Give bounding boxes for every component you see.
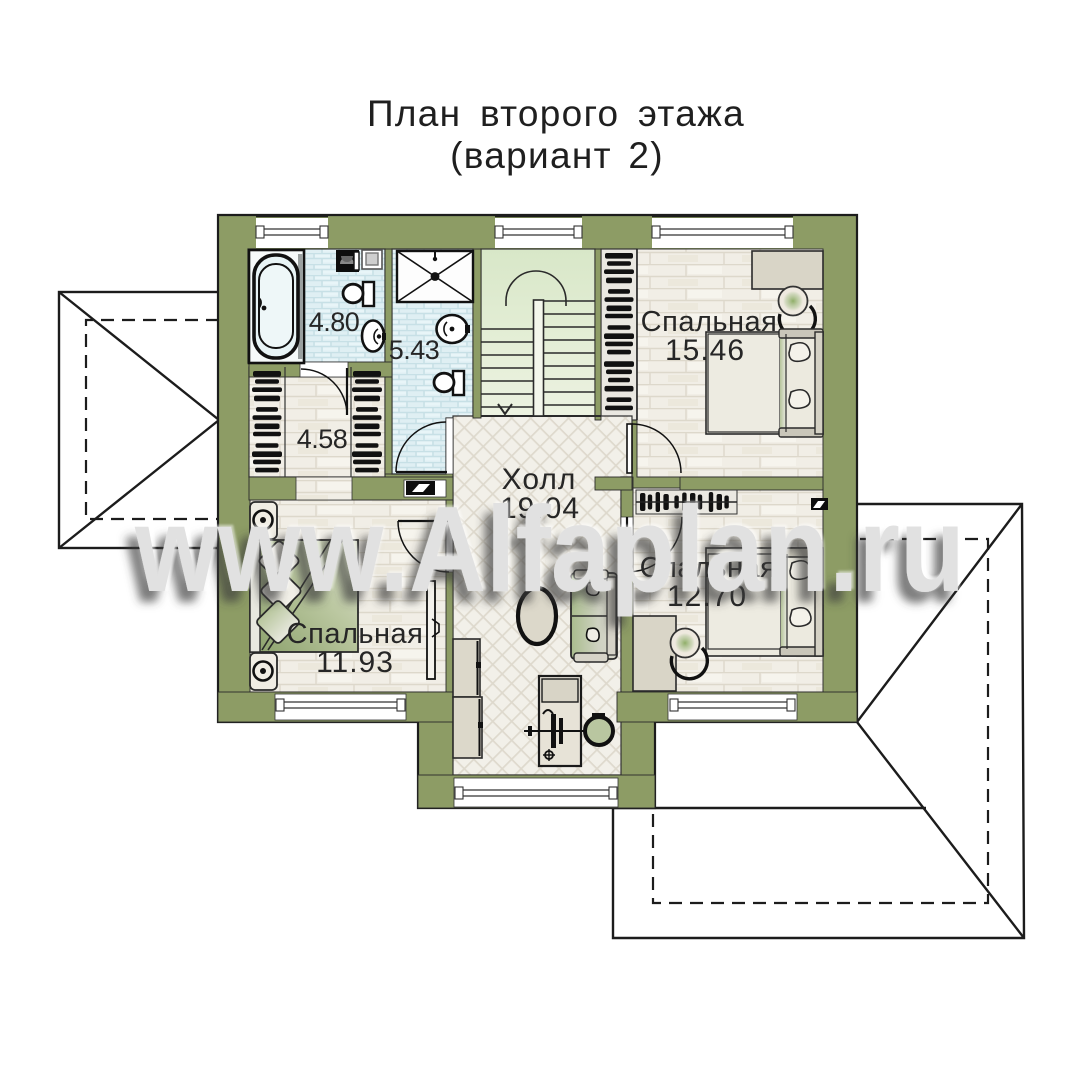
svg-text:www.Alfaplan.ru: www.Alfaplan.ru	[134, 481, 965, 617]
svg-text:План второго этажа: План второго этажа	[367, 93, 745, 134]
svg-text:15.46: 15.46	[665, 334, 745, 367]
svg-text:(вариант 2): (вариант 2)	[450, 135, 664, 176]
svg-text:4.80: 4.80	[309, 307, 360, 337]
svg-text:11.93: 11.93	[316, 646, 394, 679]
svg-text:5.43: 5.43	[389, 335, 440, 365]
svg-text:4.58: 4.58	[297, 424, 348, 454]
